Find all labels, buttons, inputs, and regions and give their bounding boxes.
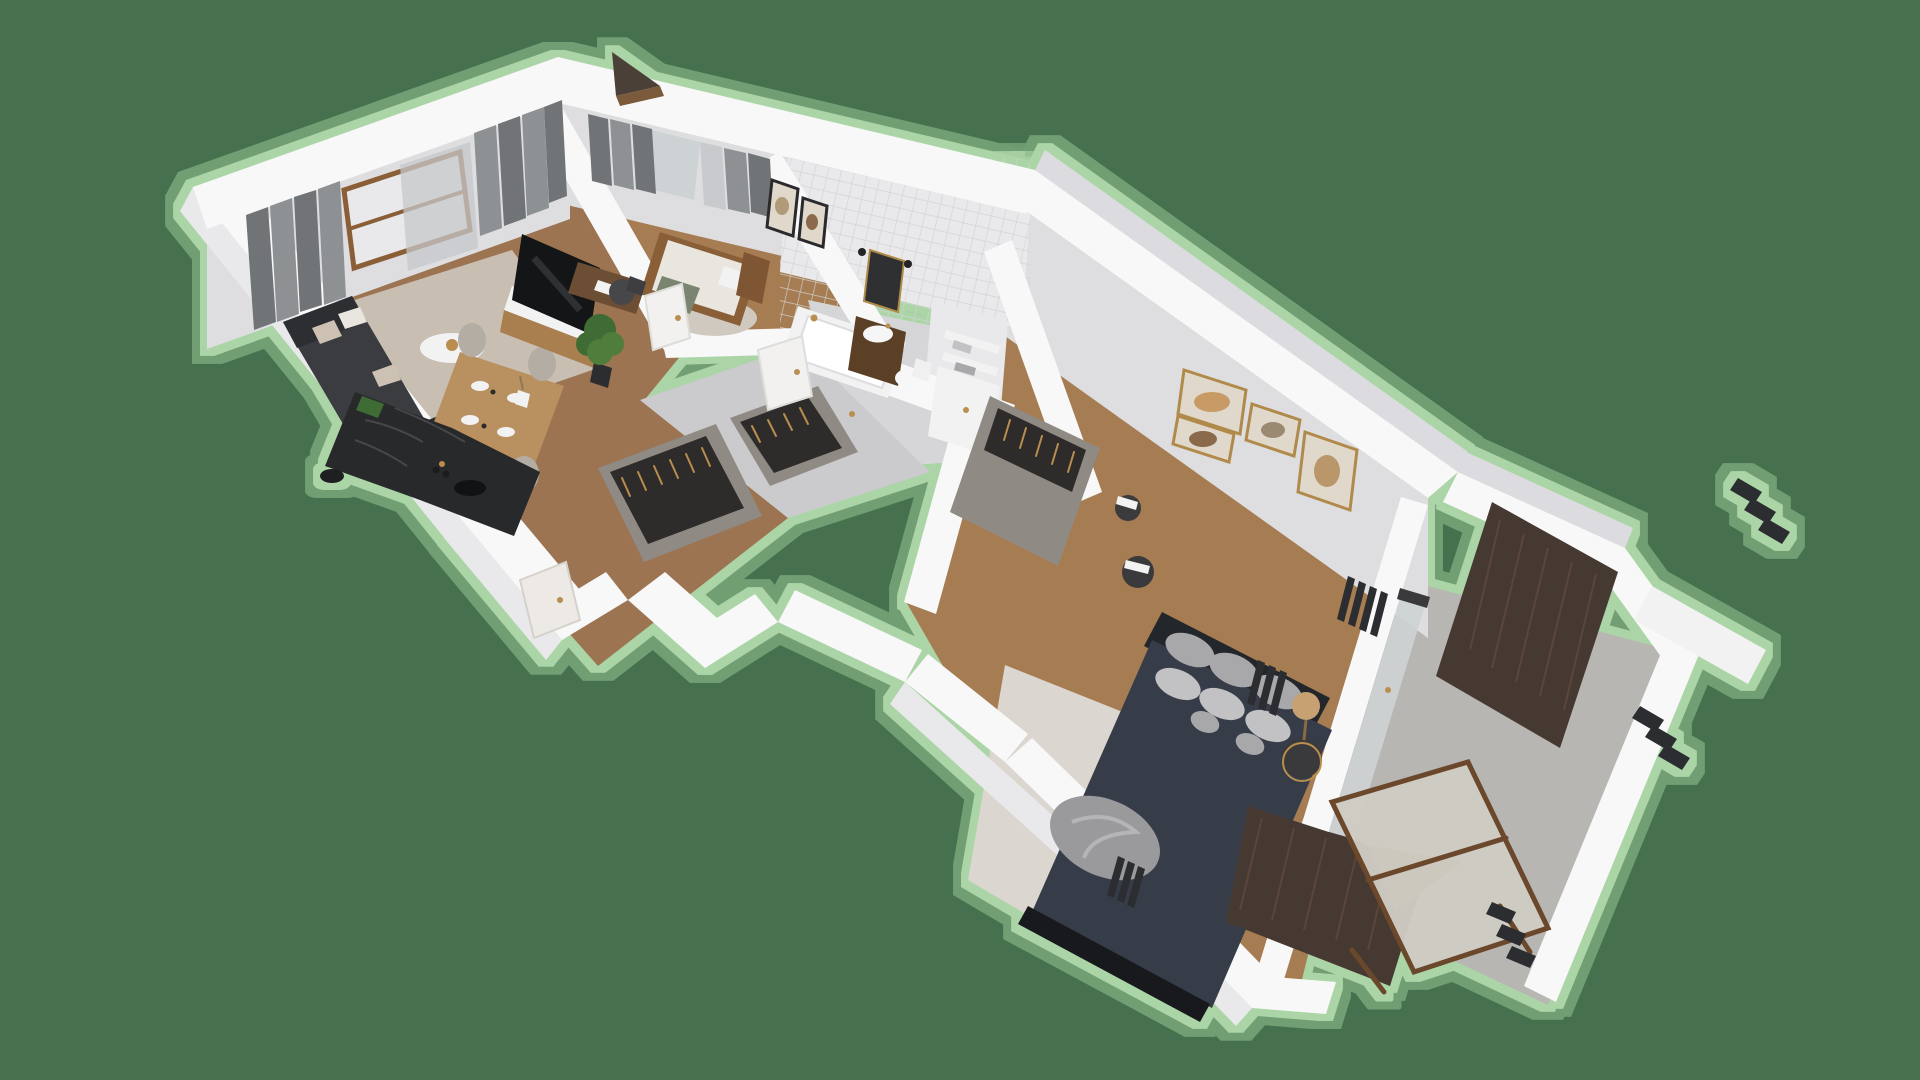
balcony-south-wall — [1252, 976, 1336, 1014]
interior-door — [645, 284, 690, 350]
tub-faucet — [811, 315, 818, 322]
cutlery — [482, 424, 487, 429]
bathroom-mirror — [864, 250, 904, 312]
frame-art — [1314, 455, 1340, 487]
entry-door-handle — [557, 597, 563, 603]
frame-art — [1261, 422, 1285, 438]
dining-chair — [528, 347, 556, 381]
cabinet-knob — [963, 407, 969, 413]
wall-sconce — [858, 248, 866, 256]
floor-plant — [587, 339, 613, 365]
door-handle — [1385, 687, 1391, 693]
cooktop — [454, 480, 486, 496]
curtain-fold — [700, 142, 726, 210]
floorplan-stage — [0, 0, 1920, 1080]
floorplan-render — [0, 0, 1920, 1080]
towel-ring — [849, 411, 855, 417]
kids-frame-art — [775, 197, 789, 215]
frame-art — [1194, 392, 1230, 412]
frame-art — [1189, 431, 1217, 447]
bottle-gold — [439, 461, 445, 467]
interior-door — [758, 336, 812, 410]
sheer-curtain — [400, 142, 478, 271]
bottle — [443, 471, 450, 478]
coffee-table-tray — [446, 339, 458, 351]
kids-frame-art — [806, 214, 818, 230]
door-handle — [675, 315, 681, 321]
rattan-lamp — [1292, 692, 1320, 720]
place-setting — [471, 381, 489, 391]
cutlery — [491, 390, 496, 395]
sink-faucet — [886, 324, 891, 329]
door-handle — [794, 369, 800, 375]
curtain-fold — [724, 148, 750, 214]
place-setting — [461, 415, 479, 425]
place-setting — [497, 427, 515, 437]
bottle — [433, 467, 440, 474]
bar-stool — [320, 469, 344, 483]
wall-sconce — [904, 260, 912, 268]
lamp-stem — [1304, 720, 1306, 740]
dining-chair — [458, 323, 486, 357]
